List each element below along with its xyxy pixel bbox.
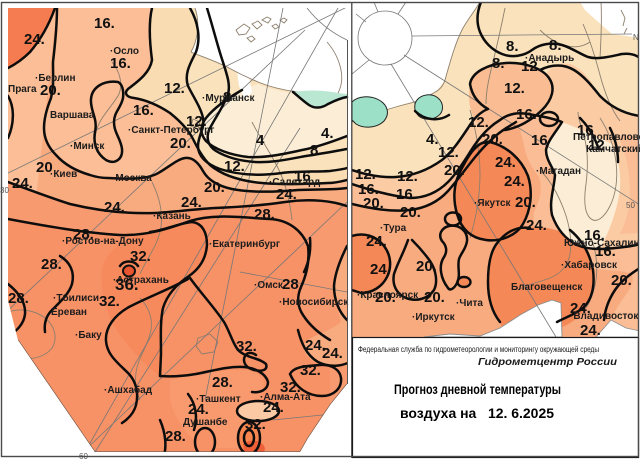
svg-text:·Якутск: ·Якутск — [474, 198, 512, 209]
svg-text:·Осло: ·Осло — [110, 46, 139, 57]
svg-text:32.: 32. — [300, 362, 321, 379]
svg-text:·Магадан: ·Магадан — [536, 166, 581, 177]
svg-text:·Омск: ·Омск — [254, 280, 284, 291]
svg-text:8: 8 — [310, 142, 318, 159]
svg-text:Ереван: Ереван — [51, 307, 87, 318]
svg-text:28.: 28. — [41, 256, 62, 273]
svg-text:20.: 20. — [416, 258, 437, 275]
svg-text:·Чита: ·Чита — [456, 298, 483, 309]
svg-text:·Мурманск: ·Мурманск — [202, 93, 255, 104]
svg-text:24.: 24. — [504, 173, 525, 190]
svg-text:20.: 20. — [40, 82, 61, 99]
svg-text:24.: 24. — [370, 261, 391, 278]
svg-text:16.: 16. — [94, 15, 115, 32]
svg-text:20.: 20. — [611, 272, 632, 289]
svg-text:20.: 20. — [515, 194, 536, 211]
svg-text:12.: 12. — [224, 158, 245, 175]
svg-text:Прогноз дневной температуры: Прогноз дневной температуры — [394, 381, 561, 397]
svg-text:·Салехард: ·Салехард — [269, 177, 321, 188]
svg-text:8.: 8. — [492, 55, 505, 72]
svg-text:·Хабаровск: ·Хабаровск — [561, 259, 618, 271]
svg-text:20.: 20. — [400, 204, 421, 221]
svg-text:·Киев: ·Киев — [50, 169, 77, 180]
svg-text:4.: 4. — [321, 125, 334, 142]
svg-text:·Минск: ·Минск — [70, 141, 105, 152]
svg-text:·Алма-Ата: ·Алма-Ата — [260, 392, 311, 403]
svg-text:8.: 8. — [506, 38, 519, 55]
svg-text:24.: 24. — [495, 154, 516, 171]
svg-text:·Казань: ·Казань — [153, 211, 191, 222]
svg-text:16.: 16. — [516, 106, 537, 123]
svg-text:28.: 28. — [8, 290, 29, 307]
svg-text:·Тбилиси: ·Тбилиси — [53, 292, 99, 304]
svg-text:воздуха на 12. 6.2025: воздуха на 12. 6.2025 — [400, 405, 554, 421]
svg-text:16.: 16. — [396, 186, 417, 203]
svg-text:12.: 12. — [468, 114, 489, 131]
svg-text:24.: 24. — [181, 194, 202, 211]
svg-text:12.: 12. — [164, 80, 185, 97]
svg-text:16.: 16. — [133, 102, 154, 119]
svg-text:·Астрахань: ·Астрахань — [113, 275, 169, 286]
svg-text:Камчатский: Камчатский — [586, 144, 640, 155]
svg-text:Душанбе: Душанбе — [183, 416, 228, 428]
svg-text:·Берлин: ·Берлин — [35, 73, 75, 84]
svg-text:·Владивосток: ·Владивосток — [570, 311, 639, 322]
svg-text:Благовещенск: Благовещенск — [511, 282, 583, 293]
svg-text:·Иркутск: ·Иркутск — [412, 312, 456, 323]
svg-text:24.: 24. — [526, 217, 547, 234]
svg-text:·Ашхабад: ·Ашхабад — [104, 384, 153, 396]
svg-text:·Анадырь: ·Анадырь — [525, 53, 574, 64]
svg-text:8.: 8. — [549, 37, 562, 54]
svg-text:28.: 28. — [165, 428, 186, 445]
svg-text:28.: 28. — [212, 374, 233, 391]
svg-text:12.: 12. — [504, 80, 525, 97]
svg-text:20.: 20. — [170, 135, 191, 152]
svg-text:16: 16 — [531, 132, 548, 149]
svg-text:28.: 28. — [254, 206, 275, 223]
svg-text:20.: 20. — [424, 289, 445, 306]
svg-text:24.: 24. — [24, 31, 45, 48]
svg-text:Южно-Сахалинск: Южно-Сахалинск — [564, 238, 640, 249]
svg-text:·Екатеринбург: ·Екатеринбург — [209, 238, 280, 250]
svg-text:Петропавловск: Петропавловск — [573, 132, 640, 143]
svg-text:12.: 12. — [438, 144, 459, 161]
svg-text:·Красноярск: ·Красноярск — [357, 290, 419, 301]
svg-text:Гидрометцентр России: Гидрометцентр России — [478, 357, 617, 368]
svg-text:Варшава: Варшава — [50, 110, 95, 121]
svg-text:20.: 20. — [363, 195, 384, 212]
svg-text:·Баку: ·Баку — [75, 330, 102, 341]
svg-text:·Москва: ·Москва — [112, 173, 152, 184]
svg-text:24.: 24. — [366, 233, 387, 250]
svg-text:32.: 32. — [130, 248, 151, 265]
svg-text:·Ростов-на-Дону: ·Ростов-на-Дону — [62, 236, 144, 247]
svg-text:32.: 32. — [236, 338, 257, 355]
svg-text:24.: 24. — [580, 322, 601, 339]
svg-text:4.: 4. — [426, 131, 439, 148]
svg-text:Федеральная служба по гидромет: Федеральная служба по гидрометеорологии … — [358, 345, 599, 354]
svg-text:Прага: Прага — [8, 84, 37, 95]
svg-text:24.: 24. — [104, 199, 125, 216]
svg-text:20.: 20. — [444, 162, 465, 179]
svg-text:20.: 20. — [482, 131, 503, 148]
svg-text:20.: 20. — [204, 179, 225, 196]
svg-text:·Тура: ·Тура — [380, 223, 407, 234]
svg-text:16.: 16. — [110, 55, 131, 72]
svg-text:24.: 24. — [12, 175, 33, 192]
svg-text:24.: 24. — [276, 186, 297, 203]
svg-text:4: 4 — [256, 132, 265, 149]
svg-text:50: 50 — [626, 201, 635, 210]
svg-text:32.: 32. — [245, 416, 266, 433]
svg-text:·Санкт-Петербург: ·Санкт-Петербург — [128, 124, 214, 136]
svg-text:28.: 28. — [282, 276, 303, 293]
svg-text:32.: 32. — [99, 293, 120, 310]
svg-text:12.: 12. — [397, 168, 418, 185]
svg-text:·Ташкент: ·Ташкент — [196, 394, 241, 405]
svg-text:24.: 24. — [322, 345, 343, 362]
svg-text:·Новосибирск: ·Новосибирск — [279, 296, 349, 308]
